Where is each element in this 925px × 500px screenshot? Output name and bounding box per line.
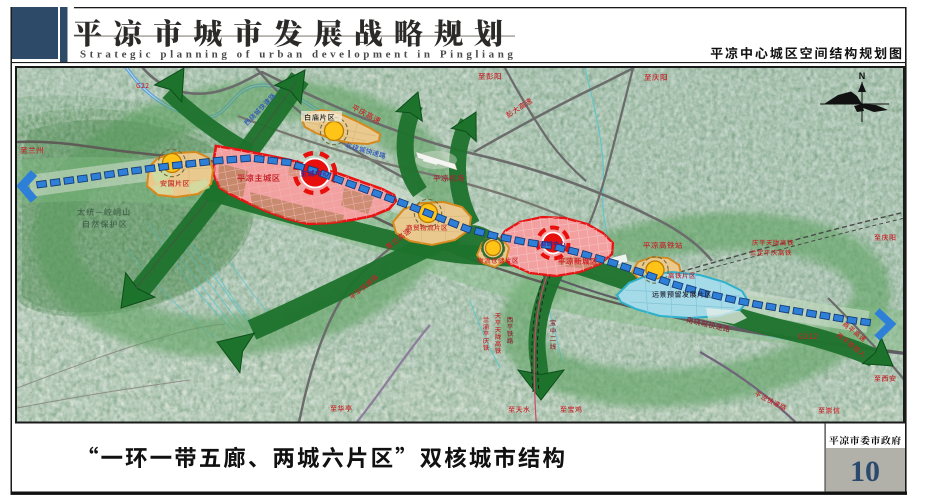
- svg-text:N: N: [859, 71, 866, 81]
- svg-text:10: 10: [850, 455, 880, 488]
- svg-text:Strategic planning of urban de: Strategic planning of urban development …: [80, 49, 516, 61]
